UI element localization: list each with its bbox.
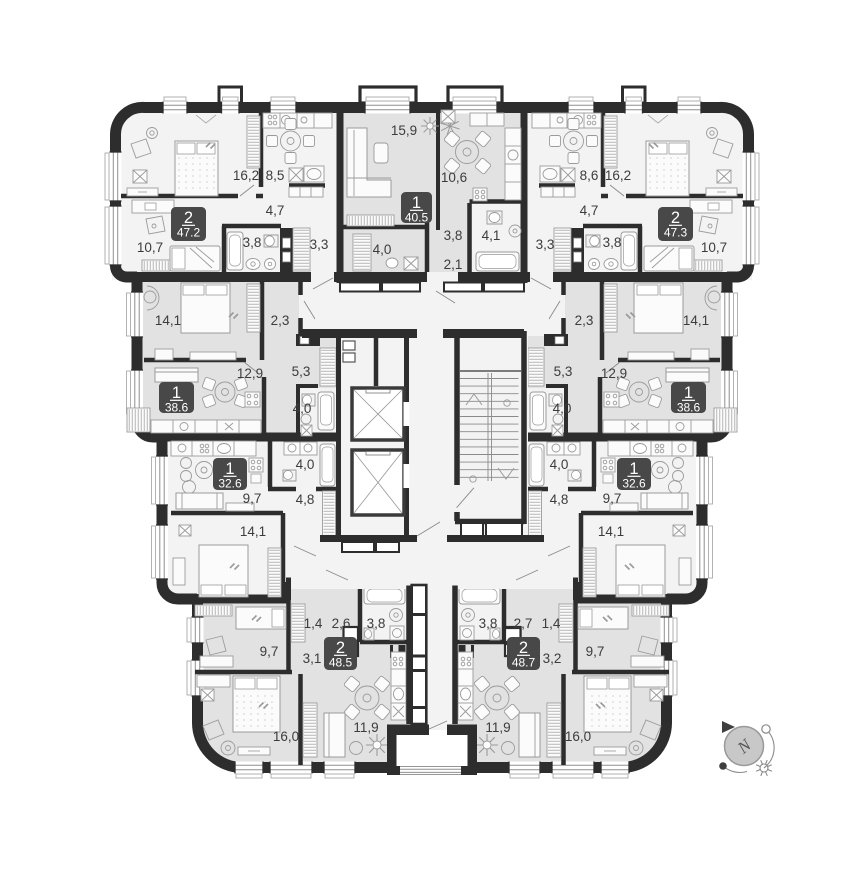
svg-text:3,8: 3,8	[444, 228, 463, 243]
svg-text:15,9: 15,9	[391, 123, 417, 138]
svg-text:2,6: 2,6	[332, 616, 351, 631]
svg-text:47.3: 47.3	[664, 226, 688, 240]
svg-text:32.6: 32.6	[622, 477, 646, 491]
svg-text:2: 2	[336, 639, 345, 657]
svg-text:4,0: 4,0	[373, 242, 392, 257]
svg-text:14,1: 14,1	[598, 524, 624, 539]
svg-text:4,0: 4,0	[553, 401, 572, 416]
svg-text:32.6: 32.6	[218, 477, 242, 491]
svg-text:47.2: 47.2	[177, 226, 201, 240]
svg-text:48.7: 48.7	[512, 656, 536, 670]
svg-text:10,7: 10,7	[137, 240, 163, 255]
svg-text:4,7: 4,7	[580, 203, 599, 218]
svg-text:4,8: 4,8	[296, 492, 315, 507]
svg-text:11,9: 11,9	[353, 720, 378, 735]
svg-text:1,4: 1,4	[542, 616, 561, 631]
svg-text:4,8: 4,8	[550, 492, 569, 507]
svg-text:1: 1	[629, 460, 638, 478]
svg-text:4,0: 4,0	[293, 401, 312, 416]
svg-text:9,7: 9,7	[603, 491, 622, 506]
svg-text:16,0: 16,0	[273, 729, 299, 744]
svg-text:12,9: 12,9	[237, 366, 263, 381]
svg-text:3,8: 3,8	[603, 235, 622, 250]
svg-text:3,1: 3,1	[303, 651, 322, 666]
svg-text:3,8: 3,8	[243, 235, 262, 250]
svg-text:48.5: 48.5	[329, 656, 353, 670]
svg-text:2,3: 2,3	[271, 313, 290, 328]
svg-text:14,1: 14,1	[683, 313, 709, 328]
svg-text:16,2: 16,2	[605, 168, 631, 183]
svg-text:8,6: 8,6	[580, 168, 599, 183]
svg-text:3,8: 3,8	[479, 616, 498, 631]
svg-text:2,7: 2,7	[514, 616, 533, 631]
svg-text:8,5: 8,5	[266, 168, 285, 183]
svg-text:10,7: 10,7	[701, 240, 727, 255]
svg-text:2,1: 2,1	[444, 257, 463, 272]
svg-text:38.6: 38.6	[165, 401, 189, 415]
svg-text:10,6: 10,6	[441, 170, 467, 185]
svg-text:5,3: 5,3	[292, 364, 311, 379]
svg-text:3,3: 3,3	[536, 237, 555, 252]
svg-text:4,0: 4,0	[550, 457, 569, 472]
svg-text:2: 2	[519, 639, 528, 657]
svg-text:9,7: 9,7	[243, 491, 262, 506]
svg-text:16,2: 16,2	[233, 168, 259, 183]
svg-text:40.5: 40.5	[405, 211, 429, 225]
svg-text:2: 2	[671, 209, 680, 227]
svg-text:4,1: 4,1	[482, 228, 501, 243]
svg-text:1: 1	[172, 384, 181, 402]
svg-text:38.6: 38.6	[677, 401, 701, 415]
svg-text:14,1: 14,1	[240, 524, 266, 539]
svg-text:1: 1	[225, 460, 234, 478]
svg-text:12,9: 12,9	[601, 366, 627, 381]
svg-text:14,1: 14,1	[155, 313, 181, 328]
svg-text:9,7: 9,7	[586, 644, 605, 659]
svg-text:16,0: 16,0	[565, 729, 591, 744]
svg-text:4,0: 4,0	[296, 457, 315, 472]
svg-text:3,2: 3,2	[543, 651, 562, 666]
svg-text:3,8: 3,8	[367, 616, 386, 631]
svg-text:1: 1	[412, 194, 421, 212]
svg-text:4,7: 4,7	[266, 203, 285, 218]
svg-text:2,3: 2,3	[575, 313, 594, 328]
svg-text:1,4: 1,4	[304, 616, 323, 631]
svg-text:3,3: 3,3	[310, 237, 329, 252]
svg-text:9,7: 9,7	[260, 644, 279, 659]
svg-text:2: 2	[184, 209, 193, 227]
svg-text:5,3: 5,3	[554, 364, 573, 379]
svg-text:1: 1	[684, 384, 693, 402]
svg-text:11,9: 11,9	[485, 720, 510, 735]
